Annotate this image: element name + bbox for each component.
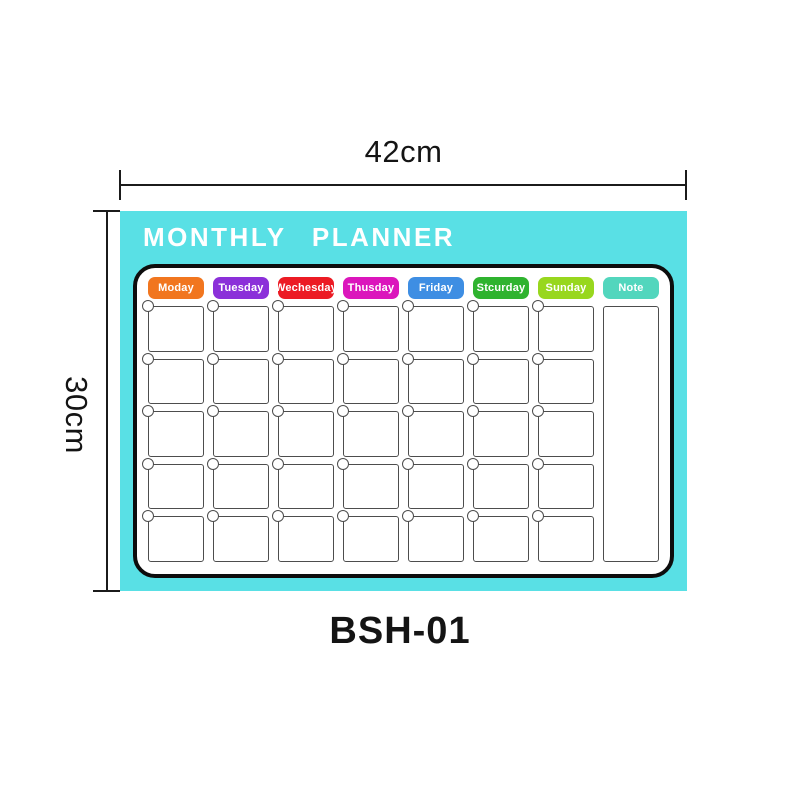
calendar-cell — [278, 464, 334, 510]
calendar-cell — [473, 464, 529, 510]
planner-board: MONTHLY PLANNER ModayTuesdayWechesdayThu… — [120, 211, 687, 591]
calendar-cell — [538, 306, 594, 352]
calendar-cell — [278, 306, 334, 352]
day-header-friday: Friday — [408, 277, 464, 299]
calendar-cell — [538, 359, 594, 405]
calendar-cell — [278, 516, 334, 562]
calendar-cell — [343, 411, 399, 457]
height-dimension-line — [106, 211, 108, 591]
calendar-cell — [538, 411, 594, 457]
calendar-cell — [408, 464, 464, 510]
calendar-cell — [408, 306, 464, 352]
calendar-cell — [473, 359, 529, 405]
width-dimension-tick-right — [685, 170, 687, 200]
calendar-panel: ModayTuesdayWechesdayThusdayFridayStcurd… — [133, 264, 674, 578]
width-dimension-label: 42cm — [120, 134, 687, 170]
magnet-hole-icon — [142, 353, 154, 365]
calendar-cell — [213, 306, 269, 352]
magnet-hole-icon — [532, 405, 544, 417]
model-number: BSH-01 — [0, 610, 800, 653]
calendar-cell — [408, 411, 464, 457]
magnet-hole-icon — [142, 405, 154, 417]
magnet-hole-icon — [272, 510, 284, 522]
calendar-cell — [343, 359, 399, 405]
day-header-note: Note — [603, 277, 659, 299]
calendar-cell — [343, 464, 399, 510]
magnet-hole-icon — [272, 405, 284, 417]
day-header-stcurday: Stcurday — [473, 277, 529, 299]
magnet-hole-icon — [272, 300, 284, 312]
calendar-cell — [538, 464, 594, 510]
magnet-hole-icon — [207, 458, 219, 470]
calendar-cell — [148, 464, 204, 510]
calendar-cell — [473, 516, 529, 562]
magnet-hole-icon — [532, 458, 544, 470]
calendar-cell — [278, 359, 334, 405]
magnet-hole-icon — [467, 353, 479, 365]
height-dimension-tick-bottom — [93, 590, 120, 592]
magnet-hole-icon — [467, 510, 479, 522]
calendar-cell — [148, 359, 204, 405]
magnet-hole-icon — [402, 510, 414, 522]
magnet-hole-icon — [207, 510, 219, 522]
magnet-hole-icon — [337, 353, 349, 365]
magnet-hole-icon — [532, 510, 544, 522]
calendar-cell — [538, 516, 594, 562]
calendar-cell — [213, 516, 269, 562]
board-title: MONTHLY PLANNER — [143, 222, 455, 253]
magnet-hole-icon — [402, 300, 414, 312]
magnet-hole-icon — [337, 300, 349, 312]
calendar-grid: ModayTuesdayWechesdayThusdayFridayStcurd… — [148, 277, 659, 562]
magnet-hole-icon — [142, 300, 154, 312]
calendar-cell — [213, 411, 269, 457]
magnet-hole-icon — [467, 458, 479, 470]
height-dimension-label: 30cm — [58, 376, 94, 454]
calendar-cell — [408, 516, 464, 562]
magnet-hole-icon — [207, 353, 219, 365]
magnet-hole-icon — [337, 510, 349, 522]
calendar-cell — [278, 411, 334, 457]
magnet-hole-icon — [207, 405, 219, 417]
magnet-hole-icon — [402, 405, 414, 417]
height-dimension-tick-top — [93, 210, 120, 212]
magnet-hole-icon — [272, 458, 284, 470]
calendar-cell — [343, 516, 399, 562]
day-header-thusday: Thusday — [343, 277, 399, 299]
magnet-hole-icon — [532, 300, 544, 312]
magnet-hole-icon — [142, 458, 154, 470]
magnet-hole-icon — [337, 405, 349, 417]
magnet-hole-icon — [402, 353, 414, 365]
day-header-tuesday: Tuesday — [213, 277, 269, 299]
day-header-sunday: Sunday — [538, 277, 594, 299]
calendar-cell — [213, 359, 269, 405]
day-header-wechesday: Wechesday — [278, 277, 334, 299]
magnet-hole-icon — [467, 300, 479, 312]
calendar-cell — [408, 359, 464, 405]
magnet-hole-icon — [467, 405, 479, 417]
magnet-hole-icon — [272, 353, 284, 365]
magnet-hole-icon — [402, 458, 414, 470]
width-dimension-tick-left — [119, 170, 121, 200]
magnet-hole-icon — [142, 510, 154, 522]
calendar-cell — [148, 306, 204, 352]
calendar-cell — [148, 411, 204, 457]
calendar-cell — [213, 464, 269, 510]
calendar-cell — [343, 306, 399, 352]
magnet-hole-icon — [337, 458, 349, 470]
calendar-cell — [473, 411, 529, 457]
day-header-moday: Moday — [148, 277, 204, 299]
magnet-hole-icon — [532, 353, 544, 365]
calendar-cell — [473, 306, 529, 352]
width-dimension-line — [120, 184, 687, 186]
magnet-hole-icon — [207, 300, 219, 312]
calendar-cell — [148, 516, 204, 562]
note-cell — [603, 306, 659, 562]
